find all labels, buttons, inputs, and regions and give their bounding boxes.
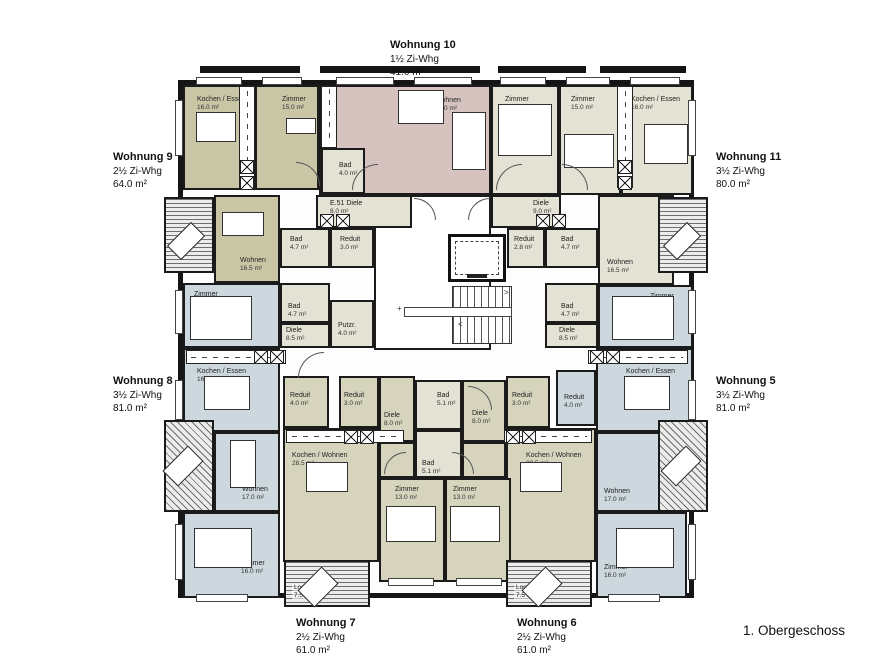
elevator	[448, 234, 506, 282]
shaft-icon-0	[240, 160, 254, 174]
shaft-icon-4	[320, 214, 334, 228]
room-label-w6-reduit-3: Reduit3.0 m²	[512, 392, 532, 408]
apartment-type: 3½ Zi-Whg	[716, 165, 781, 178]
roof-slab-2	[498, 66, 586, 73]
furniture-11	[624, 376, 670, 410]
window-12	[688, 290, 696, 334]
furniture-13	[194, 528, 252, 568]
area-text: 8.0 m²	[472, 418, 490, 426]
apartment-area: 61.0 m²	[296, 644, 356, 654]
shaft-icon-15	[522, 430, 536, 444]
name-text: Bad	[290, 236, 302, 243]
kitchen-counter-1	[321, 86, 337, 148]
window-14	[688, 524, 696, 580]
area-text: 3.0 m²	[344, 400, 364, 408]
name-text: Wohnen	[604, 488, 630, 495]
plan-glyph-0: +	[397, 304, 402, 313]
name-text: Kochen / Essen	[626, 368, 675, 375]
furniture-3	[452, 112, 486, 170]
furniture-2	[398, 90, 444, 124]
area-text: 16.5 m²	[607, 267, 633, 275]
apartment-type: 2½ Zi-Whg	[296, 631, 356, 644]
name-text: Diele	[472, 410, 488, 417]
room-label-w11-bad: Bad4.7 m²	[561, 236, 579, 252]
area-text: 16.0 m²	[604, 572, 628, 580]
area-text: 16.0 m²	[241, 568, 265, 576]
room-label-w9-zimmer: Zimmer15.0 m²	[282, 96, 306, 112]
name-text: Reduit	[290, 392, 310, 399]
area-text: 16.0 m²	[631, 104, 680, 112]
name-text: Reduit	[344, 392, 364, 399]
room-w5-diele-mitte: Diele8.5 m²	[545, 323, 598, 348]
room-label-w6-zimmer: Zimmer13.0 m²	[453, 486, 477, 502]
elevator-door	[467, 274, 488, 278]
room-putzraum: Putzr.4.0 m²	[330, 300, 374, 348]
shaft-icon-12	[344, 430, 358, 444]
name-text: Diele	[286, 327, 302, 334]
room-w7-kochen-wohnen: Kochen / Wohnen28.5 m²	[283, 428, 379, 562]
name-text: Bad	[437, 392, 449, 399]
furniture-10	[204, 376, 250, 410]
name-text: Diele	[559, 327, 575, 334]
window-18	[456, 578, 502, 586]
name-text: Putzr.	[338, 322, 356, 329]
roof-slab-3	[600, 66, 686, 73]
shaft-icon-13	[360, 430, 374, 444]
name-text: Reduit	[564, 394, 584, 401]
shaft-icon-1	[240, 176, 254, 190]
apartment-area: 81.0 m²	[716, 402, 776, 415]
room-label-w11-reduit: Reduit2.8 m²	[514, 236, 534, 252]
shaft-icon-3	[618, 176, 632, 190]
furniture-18	[450, 506, 500, 542]
name-text: Zimmer	[571, 96, 595, 103]
apartment-label-wohnung-10: Wohnung 101½ Zi-Whg41.0 m²	[390, 38, 456, 79]
name-text: Bad	[288, 303, 300, 310]
apartment-name: Wohnung 7	[296, 616, 356, 631]
room-w5-bad-mitte: Bad4.7 m²	[545, 283, 598, 323]
area-text: 4.7 m²	[561, 311, 579, 319]
window-6	[630, 77, 680, 85]
apartment-type: 1½ Zi-Whg	[390, 53, 456, 66]
room-label-w8-wohnen: Wohnen17.0 m²	[242, 486, 268, 502]
area-text: 17.0 m²	[604, 496, 630, 504]
shaft-icon-7	[552, 214, 566, 228]
elevator-car	[455, 241, 499, 275]
furniture-4	[498, 104, 552, 156]
room-w6-bad: Bad5.1 m²	[415, 380, 462, 430]
window-7	[175, 100, 183, 156]
name-text: Reduit	[512, 392, 532, 399]
apartment-label-wohnung-11: Wohnung 113½ Zi-Whg80.0 m²	[716, 150, 781, 191]
room-label-w8-bad: Bad4.7 m²	[288, 303, 306, 319]
name-text: Bad	[339, 162, 351, 169]
furniture-15	[306, 462, 348, 492]
shaft-icon-10	[590, 350, 604, 364]
name-text: Reduit	[340, 236, 360, 243]
name-text: Kochen / Essen	[631, 96, 680, 103]
window-15	[196, 594, 248, 602]
furniture-1	[286, 118, 316, 134]
apartment-type: 3½ Zi-Whg	[716, 389, 776, 402]
area-text: 16.5 m²	[240, 265, 266, 273]
room-label-w7-bad: Bad5.1 m²	[422, 460, 440, 476]
room-label-w7-reduit-3: Reduit3.0 m²	[344, 392, 364, 408]
apartment-area: 61.0 m²	[517, 644, 577, 654]
furniture-9	[612, 296, 674, 340]
plan-glyph-2: <	[458, 320, 463, 329]
window-2	[336, 77, 394, 85]
apartment-name: Wohnung 9	[113, 150, 173, 165]
room-label-putzraum: Putzr.4.0 m²	[338, 322, 356, 338]
room-label-w6-diele: Diele8.0 m²	[472, 410, 490, 426]
floor-title: 1. Obergeschoss	[743, 623, 845, 638]
shaft-icon-14	[506, 430, 520, 444]
name-text: Bad	[422, 460, 434, 467]
room-label-w11-kochen-essen: Kochen / Essen16.0 m²	[631, 96, 680, 112]
name-text: Zimmer	[282, 96, 306, 103]
name-text: Kochen / Wohnen	[292, 452, 348, 459]
name-text: Kochen / Wohnen	[526, 452, 582, 459]
window-0	[196, 77, 242, 85]
shaft-icon-9	[270, 350, 284, 364]
name-text: Zimmer	[395, 486, 419, 493]
apartment-name: Wohnung 5	[716, 374, 776, 389]
name-text: Wohnen	[240, 257, 266, 264]
room-label-w6-bad: Bad5.1 m²	[437, 392, 455, 408]
apartment-area: 64.0 m²	[113, 178, 173, 191]
name-text: Reduit	[514, 236, 534, 243]
area-text: 13.0 m²	[395, 494, 419, 502]
name-text: Kochen / Essen	[197, 368, 246, 375]
room-w6-kochen-wohnen: Kochen / Wohnen28.5 m²	[506, 428, 596, 562]
apartment-type: 2½ Zi-Whg	[113, 165, 173, 178]
roof-slab-0	[200, 66, 300, 73]
area-text: 4.7 m²	[290, 244, 308, 252]
window-13	[688, 380, 696, 420]
room-w11-diele: Diele9.0 m²	[491, 195, 561, 228]
apartment-area: 81.0 m²	[113, 402, 173, 415]
furniture-5	[564, 134, 614, 168]
apartment-name: Wohnung 11	[716, 150, 781, 165]
stair-landing	[404, 307, 512, 317]
room-label-w11-wohnen: Wohnen16.5 m²	[607, 259, 633, 275]
area-text: 5.1 m²	[422, 468, 440, 476]
apartment-type: 3½ Zi-Whg	[113, 389, 173, 402]
window-17	[388, 578, 434, 586]
plan-glyph-1: >	[504, 288, 509, 297]
room-label-w5-diele-mitte: Diele8.5 m²	[559, 327, 577, 343]
apartment-area: 41.0 m²	[390, 66, 456, 79]
room-label-w11-zimmer-2: Zimmer15.0 m²	[571, 96, 595, 112]
room-label-w5-reduit: Reduit4.0 m²	[564, 394, 584, 410]
room-label-w7-reduit-4: Reduit4.0 m²	[290, 392, 310, 408]
name-text: Diele	[384, 412, 400, 419]
apartment-label-wohnung-8: Wohnung 83½ Zi-Whg81.0 m²	[113, 374, 173, 415]
area-text: 4.0 m²	[564, 402, 584, 410]
apartment-label-wohnung-9: Wohnung 92½ Zi-Whg64.0 m²	[113, 150, 173, 191]
room-label-w5-bad-mitte: Bad4.7 m²	[561, 303, 579, 319]
name-text: Bad	[561, 236, 573, 243]
window-16	[608, 594, 660, 602]
apartment-label-wohnung-5: Wohnung 53½ Zi-Whg81.0 m²	[716, 374, 776, 415]
area-text: 4.7 m²	[561, 244, 579, 252]
window-1	[262, 77, 302, 85]
shaft-icon-2	[618, 160, 632, 174]
room-w9-bad: Bad4.7 m²	[280, 228, 330, 268]
shaft-icon-11	[606, 350, 620, 364]
furniture-17	[386, 506, 436, 542]
apartment-label-wohnung-7: Wohnung 72½ Zi-Whg61.0 m²	[296, 616, 356, 654]
window-11	[688, 100, 696, 156]
area-text: 2.8 m²	[514, 244, 534, 252]
room-label-w9-reduit: Reduit3.0 m²	[340, 236, 360, 252]
room-w6-reduit-3: Reduit3.0 m²	[506, 376, 550, 428]
room-w11-bad: Bad4.7 m²	[545, 228, 598, 268]
area-text: 3.0 m²	[512, 400, 532, 408]
room-label-w5-wohnen: Wohnen17.0 m²	[604, 488, 630, 504]
name-text: Zimmer	[505, 96, 529, 103]
window-9	[175, 380, 183, 420]
window-10	[175, 524, 183, 580]
area-text: 8.5 m²	[559, 335, 577, 343]
apartment-name: Wohnung 8	[113, 374, 173, 389]
name-text: Bad	[561, 303, 573, 310]
apartment-label-wohnung-6: Wohnung 62½ Zi-Whg61.0 m²	[517, 616, 577, 654]
area-text: 8.5 m²	[286, 335, 304, 343]
room-w5-reduit: Reduit4.0 m²	[556, 370, 596, 426]
room-w11-reduit: Reduit2.8 m²	[507, 228, 545, 268]
apartment-area: 80.0 m²	[716, 178, 781, 191]
floor-plan-canvas: 1. Obergeschoss Kochen / Essen16.0 m²Zim…	[0, 0, 878, 654]
furniture-14	[616, 528, 674, 568]
room-label-w9-bad: Bad4.7 m²	[290, 236, 308, 252]
window-8	[175, 290, 183, 334]
furniture-6	[644, 124, 688, 164]
area-text: 4.0 m²	[290, 400, 310, 408]
window-4	[500, 77, 546, 85]
room-w7-reduit-4: Reduit4.0 m²	[283, 376, 329, 428]
window-5	[566, 77, 610, 85]
name-text: Zimmer	[453, 486, 477, 493]
room-w8-diele: Diele8.5 m²	[280, 323, 330, 348]
shaft-icon-6	[536, 214, 550, 228]
room-w8-bad: Bad4.7 m²	[280, 283, 330, 323]
room-label-w7-zimmer: Zimmer13.0 m²	[395, 486, 419, 502]
area-text: 4.7 m²	[288, 311, 306, 319]
shaft-icon-5	[336, 214, 350, 228]
room-label-w7-diele: Diele8.0 m²	[384, 412, 402, 428]
area-text: 4.0 m²	[338, 330, 356, 338]
area-text: 15.0 m²	[571, 104, 595, 112]
area-text: 8.0 m²	[384, 420, 402, 428]
shaft-icon-8	[254, 350, 268, 364]
furniture-7	[222, 212, 264, 236]
name-text: Wohnen	[607, 259, 633, 266]
furniture-12	[230, 440, 256, 488]
area-text: 15.0 m²	[282, 104, 306, 112]
apartment-name: Wohnung 6	[517, 616, 577, 631]
area-text: 3.0 m²	[340, 244, 360, 252]
name-text: E.51 Diele	[330, 200, 362, 207]
furniture-8	[190, 296, 252, 340]
room-w9-wohnen: Wohnen16.5 m²	[214, 195, 280, 283]
room-label-w9-wohnen: Wohnen16.5 m²	[240, 257, 266, 273]
room-w7-reduit-3: Reduit3.0 m²	[339, 376, 379, 428]
room-w9-reduit: Reduit3.0 m²	[330, 228, 374, 268]
apartment-name: Wohnung 10	[390, 38, 456, 53]
furniture-0	[196, 112, 236, 142]
area-text: 13.0 m²	[453, 494, 477, 502]
room-w5-wohnen: Wohnen17.0 m²	[596, 432, 662, 512]
area-text: 5.1 m²	[437, 400, 455, 408]
area-text: 17.0 m²	[242, 494, 268, 502]
apartment-type: 2½ Zi-Whg	[517, 631, 577, 644]
name-text: Diele	[533, 200, 549, 207]
room-label-w8-diele: Diele8.5 m²	[286, 327, 304, 343]
furniture-16	[520, 462, 562, 492]
